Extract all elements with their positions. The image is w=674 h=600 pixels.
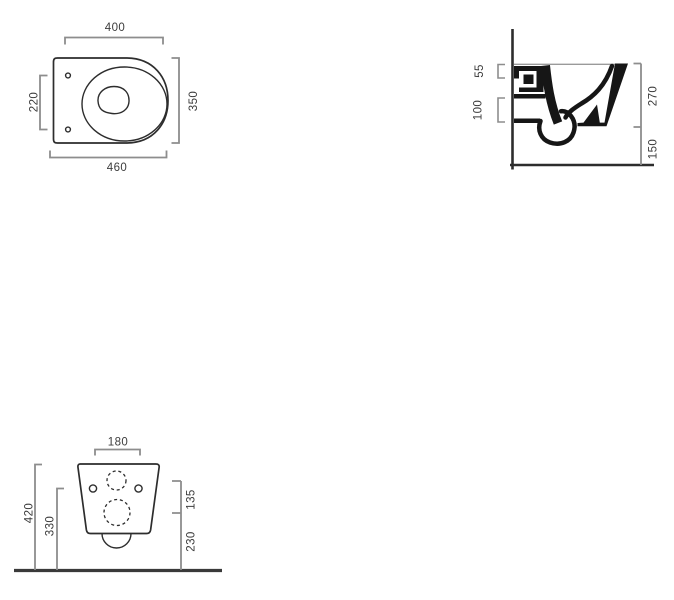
dim-180-label: 180 xyxy=(108,437,128,449)
top-view: 400 460 350 220 xyxy=(29,22,201,174)
dim-135-230-line xyxy=(172,481,181,570)
bowl-rim-ellipse xyxy=(82,67,167,141)
bowl-rear-wall xyxy=(546,66,559,124)
fixing-hole-left xyxy=(89,485,96,492)
outlet-lower-bar xyxy=(514,119,540,124)
dim-220-label: 220 xyxy=(29,92,41,112)
dim-330-label: 330 xyxy=(45,516,57,536)
dim-100-label: 100 xyxy=(473,100,485,120)
dim-55-label: 55 xyxy=(474,64,486,78)
dim-230-label: 230 xyxy=(186,531,198,551)
dim-180-line xyxy=(95,450,140,456)
trap-bulge-semicircle xyxy=(102,534,131,549)
fixing-hole-bottom xyxy=(66,127,71,132)
dim-460-line xyxy=(50,151,167,158)
dim-270-150-line xyxy=(634,64,642,166)
rear-body-outline xyxy=(78,464,159,534)
dim-400-line xyxy=(65,38,163,45)
inlet-pipe-core xyxy=(524,75,534,85)
dim-420-line xyxy=(35,465,42,571)
fixing-hole-right xyxy=(135,485,142,492)
dim-220-line xyxy=(40,76,48,130)
dim-100-bracket xyxy=(498,98,505,122)
rear-view: 180 420 330 135 230 xyxy=(14,437,222,571)
dim-420-label: 420 xyxy=(24,503,36,523)
dim-270-label: 270 xyxy=(648,86,660,106)
inlet-hole-dashed xyxy=(107,471,126,490)
fixing-hole-top xyxy=(66,73,71,78)
drain-hole-dashed xyxy=(104,500,130,526)
dim-460-label: 460 xyxy=(107,162,127,174)
dim-150-label: 150 xyxy=(648,139,660,159)
dim-350-line xyxy=(172,58,180,143)
water-surface-outline xyxy=(98,87,129,114)
dim-330-line xyxy=(57,489,64,571)
bowl-front-curve xyxy=(566,66,613,118)
side-view: 55 100 270 150 xyxy=(473,29,660,170)
dim-135-label: 135 xyxy=(186,489,198,509)
dim-350-label: 350 xyxy=(188,91,200,111)
technical-drawing-canvas: 400 460 350 220 55 100 xyxy=(0,0,674,600)
dim-55-bracket xyxy=(498,65,505,79)
outlet-upper-bar xyxy=(514,94,546,99)
front-section xyxy=(578,64,629,127)
dim-400-label: 400 xyxy=(105,22,125,34)
